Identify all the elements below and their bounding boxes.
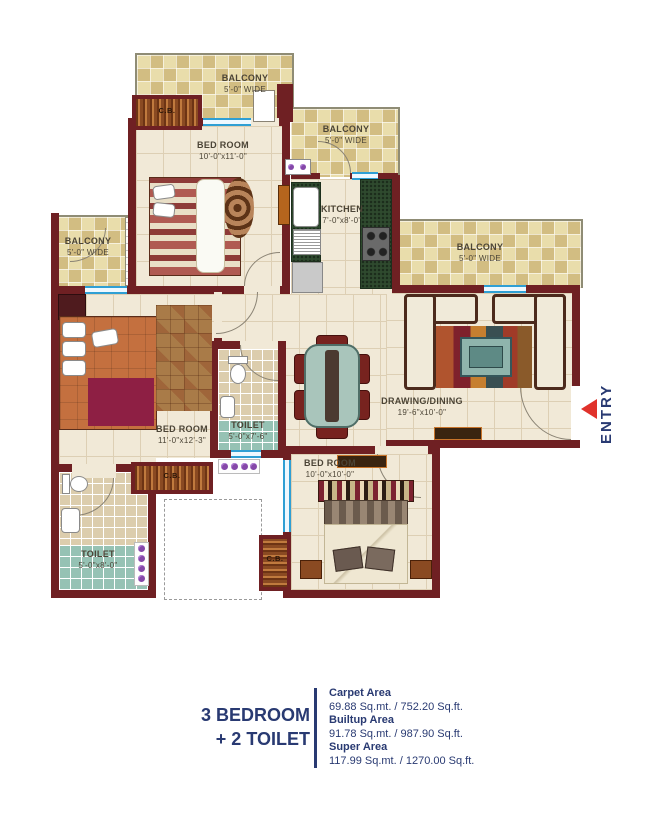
room-name: BALCONY [190, 73, 300, 84]
room-name: TOILET [58, 549, 138, 560]
super-area-label: Super Area [329, 741, 559, 755]
summary-divider [314, 688, 317, 768]
window-bedroom-left-balcony [85, 286, 127, 294]
balcony-mid-label: BALCONY 5'-0" WIDE [301, 124, 391, 146]
room-name: BED ROOM [170, 140, 276, 151]
pillow-dark [365, 546, 395, 571]
entry-arrow-icon [581, 399, 597, 419]
super-area-value: 117.99 Sq.mt. / 1270.00 Sq.ft. [329, 755, 559, 769]
window-bedroom-top [203, 118, 251, 126]
room-dims: 10'-0"x10'-0" [280, 469, 380, 480]
pillow-dark [333, 546, 364, 572]
room-name: DRAWING/DINING [360, 396, 484, 407]
entry-label: ENTRY [598, 382, 615, 444]
room-dims: 5'-0"x7'-6" [215, 431, 281, 442]
drawing-dining-label: DRAWING/DINING 19'-6"x10'-0" [360, 396, 484, 418]
room-name: BALCONY [425, 242, 535, 253]
kitchen-label: KITCHEN 7'-0"x8'-0" [299, 204, 385, 226]
cupboard-label: C.B. [150, 471, 194, 480]
title-line1: 3 BEDROOM [165, 703, 310, 727]
room-name: BALCONY [48, 236, 128, 247]
kitchen-stove [362, 227, 390, 261]
bed-duvet-top [196, 179, 225, 273]
room-name: BALCONY [301, 124, 391, 135]
kitchen-drainboard [293, 229, 321, 255]
cupboard-label: C.B. [264, 554, 286, 563]
builtup-area-value: 91.78 Sq.mt. / 987.90 Sq.ft. [329, 728, 559, 742]
carpet-area-value: 69.88 Sq.mt. / 752.20 Sq.ft. [329, 701, 559, 715]
balcony-left-label: BALCONY 5'-0" WIDE [48, 236, 128, 258]
builtup-area-label: Builtup Area [329, 714, 559, 728]
sofa-right-side [534, 294, 566, 390]
door-leaf-bedroom-top [278, 185, 290, 225]
room-dims: 5'-0" WIDE [425, 253, 535, 264]
room-dims: 5'-0" WIDE [48, 247, 128, 258]
wash-basin [61, 508, 80, 533]
wash-basin-niche [285, 159, 311, 175]
sofa-left-side [404, 294, 436, 390]
lobby-dashed-outline [164, 499, 262, 600]
kitchen-right-wall [392, 175, 400, 287]
window-toilet-mid [231, 450, 261, 458]
bedroom-top-label: BED ROOM 10'-0"x11'-0" [170, 140, 276, 162]
pillow [62, 360, 86, 376]
room-dims: 10'-0"x11'-0" [170, 151, 276, 162]
area-details: Carpet Area 69.88 Sq.mt. / 752.20 Sq.ft.… [329, 687, 559, 768]
plan-type-title: 3 BEDROOM + 2 TOILET [165, 703, 310, 751]
title-line2: + 2 TOILET [165, 727, 310, 751]
wash-basin [220, 396, 235, 418]
wc-tank [228, 356, 248, 364]
tv-unit [434, 427, 482, 440]
wc-bowl [230, 364, 246, 384]
room-name: KITCHEN [299, 204, 385, 215]
room-dims: 7'-0"x8'-0" [299, 215, 385, 226]
planter-strip [218, 459, 260, 474]
room-dims: 5'-0"x8'-0" [58, 560, 138, 571]
bed-headboard-bottom [318, 480, 414, 502]
toilet-left-label: TOILET 5'-0"x8'-0" [58, 549, 138, 571]
pillow [62, 341, 86, 357]
floor-plan-page: C.B. C.B. C.B. [0, 0, 660, 835]
wc-bowl [70, 476, 88, 492]
wc-tank [62, 474, 70, 494]
cupboard-label: C.B. [146, 106, 188, 115]
carpet-area-label: Carpet Area [329, 687, 559, 701]
bedroom-bottom-label: BED ROOM 10'-0"x10'-0" [280, 458, 380, 480]
swirl-rug [224, 178, 254, 238]
pillow [62, 322, 86, 338]
room-dims: 5'-0" WIDE [301, 135, 391, 146]
cupboard-bedroom-bottom [259, 535, 291, 591]
pillow [152, 202, 175, 218]
coffee-table [460, 337, 512, 377]
kitchen-fridge [292, 262, 323, 293]
door-gap-bedroom-bottom [375, 446, 428, 454]
window-drawing-balcony [484, 285, 526, 293]
toilet-mid-label: TOILET 5'-0"x7'-6" [215, 420, 281, 442]
bed-left-blanket [88, 378, 154, 426]
bedside-table [410, 560, 432, 579]
dining-table [304, 344, 360, 428]
entry-door-gap [571, 386, 580, 440]
room-dims: 5'-0" WIDE [190, 84, 300, 95]
room-name: BED ROOM [280, 458, 380, 469]
balcony-right-label: BALCONY 5'-0" WIDE [425, 242, 535, 264]
bedside-table [300, 560, 322, 579]
room-dims: 19'-6"x10'-0" [360, 407, 484, 418]
master-side-rug [156, 305, 212, 411]
room-name: TOILET [215, 420, 281, 431]
balcony-top-label: BALCONY 5'-0" WIDE [190, 73, 300, 95]
bed-pillow-band [324, 500, 408, 526]
